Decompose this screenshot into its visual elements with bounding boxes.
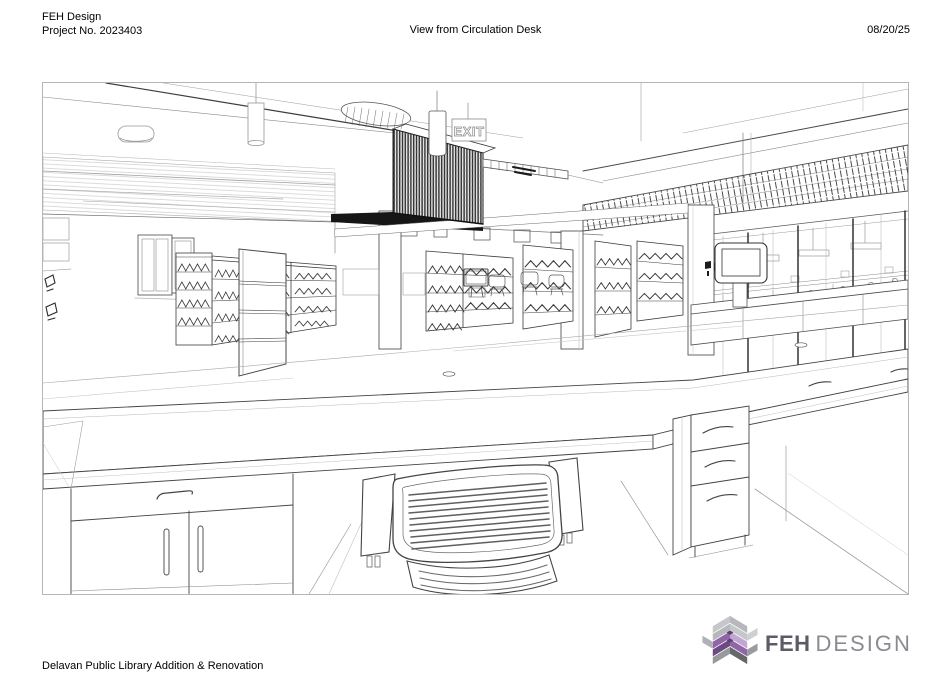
drawer-handle <box>157 491 192 499</box>
sheet-date: 08/20/25 <box>867 24 910 36</box>
logo-primary: FEH <box>765 631 811 656</box>
door-handle <box>164 529 169 575</box>
feh-design-logo: FEHDESIGN <box>699 612 914 668</box>
desk-cabinets <box>71 474 293 594</box>
drawing-viewport: EXIT <box>42 82 909 595</box>
right-slat-ceiling <box>583 145 908 231</box>
exit-sign-label: EXIT <box>454 124 485 139</box>
project-name: Delavan Public Library Addition & Renova… <box>42 660 263 672</box>
view-title: View from Circulation Desk <box>0 24 951 36</box>
firm-name: FEH Design <box>42 10 142 24</box>
shelving <box>176 241 683 376</box>
task-chair <box>361 458 583 594</box>
drawer-pedestal <box>673 406 753 558</box>
door-handle <box>198 526 203 572</box>
exit-sign: EXIT <box>452 103 486 141</box>
pendant-lights-left <box>118 83 264 146</box>
logo-secondary: DESIGN <box>816 631 912 656</box>
pendant-cylinder <box>429 91 446 156</box>
chair-armrest-left <box>361 474 395 556</box>
feh-logo-text: FEHDESIGN <box>765 631 912 657</box>
ceiling-cloud <box>43 153 335 222</box>
feh-logo-mark-icon <box>699 614 761 666</box>
distant-seating-left <box>43 269 71 320</box>
